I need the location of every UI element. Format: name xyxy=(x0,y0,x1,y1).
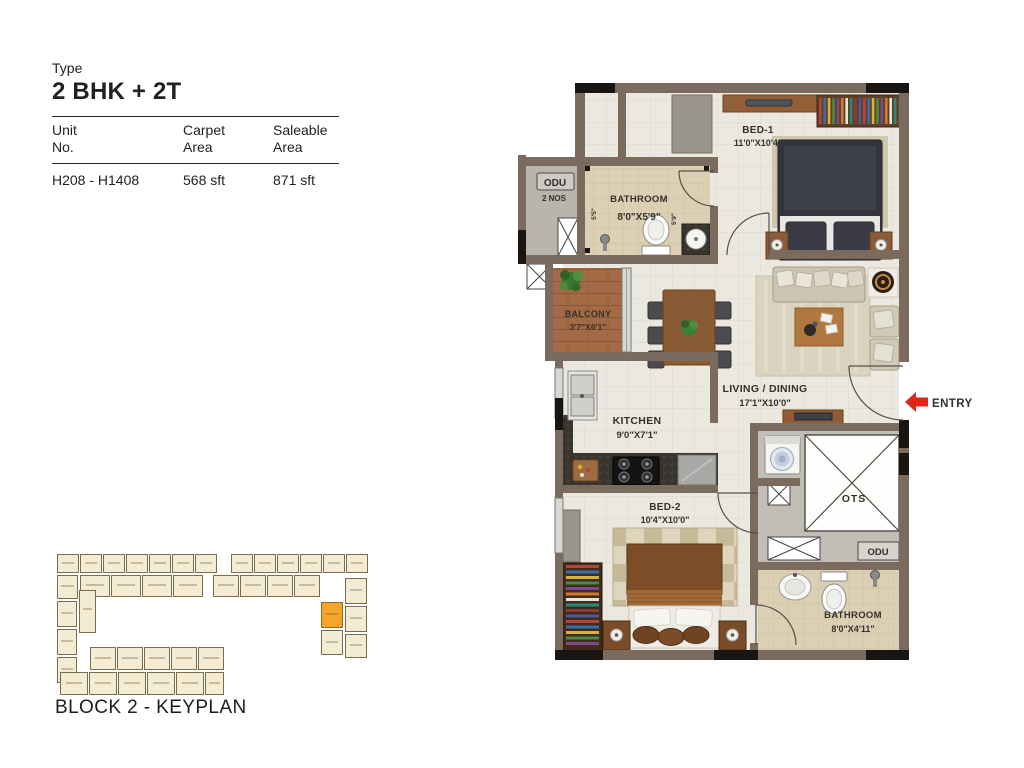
keyplan-block xyxy=(147,672,175,695)
keyplan-block xyxy=(149,554,171,573)
keyplan-block xyxy=(198,647,224,670)
balcony-plant xyxy=(560,270,583,292)
keyplan-block xyxy=(79,590,96,633)
keyplan xyxy=(55,552,370,697)
column-saleable-area: SaleableArea xyxy=(273,122,328,156)
keyplan-block xyxy=(345,606,367,632)
toilet-icon xyxy=(642,246,670,255)
keyplan-block xyxy=(144,647,170,670)
keyplan-block xyxy=(89,672,117,695)
keyplan-block xyxy=(171,647,197,670)
bathroom1-dim: 8'0"X5'9" xyxy=(617,212,660,223)
toilet-icon xyxy=(821,572,847,581)
keyplan-block xyxy=(57,601,77,627)
keyplan-block xyxy=(240,575,266,597)
bed2-label: BED-2 xyxy=(649,502,681,513)
bed2 xyxy=(627,544,722,594)
keyplan-block xyxy=(172,554,194,573)
entry-arrow-icon xyxy=(905,392,928,412)
floor-plan: BED-1 11'0"X10'4" BATHROOM 8'0"X5'9" 5'5… xyxy=(518,78,1024,670)
carpet-area-value: 568 sft xyxy=(183,172,225,188)
living-dim: 17'1"X10'0" xyxy=(739,398,791,409)
column-unit-no: UnitNo. xyxy=(52,122,77,156)
keyplan-block xyxy=(57,629,77,655)
keyplan-block xyxy=(126,554,148,573)
entry-label: ENTRY xyxy=(932,398,973,410)
shower-icon xyxy=(601,235,610,244)
keyplan-block xyxy=(321,630,343,655)
keyplan-block xyxy=(254,554,276,573)
keyplan-highlight-unit xyxy=(321,602,343,628)
keyplan-block xyxy=(173,575,203,597)
keyplan-block xyxy=(346,554,368,573)
bathroom2-label: BATHROOM xyxy=(824,610,882,621)
keyplan-block xyxy=(117,647,143,670)
bathroom2-dim: 8'0"X4'11" xyxy=(831,624,874,634)
keyplan-block xyxy=(213,575,239,597)
keyplan-block xyxy=(294,575,320,597)
bathroom1-side-dim: 5'9" xyxy=(671,213,678,225)
unit-info-panel: Type 2 BHK + 2T UnitNo. CarpetArea Salea… xyxy=(52,60,339,195)
keyplan-block xyxy=(80,554,102,573)
ots-label: OTS xyxy=(842,493,867,505)
keyplan-block xyxy=(267,575,293,597)
keyplan-block xyxy=(57,554,79,573)
keyplan-block xyxy=(345,578,367,604)
keyplan-block xyxy=(60,672,88,695)
balcony-dim: 3'7"X6'1" xyxy=(570,322,607,332)
living-label: LIVING / DINING xyxy=(722,383,807,395)
keyplan-block xyxy=(103,554,125,573)
bed1-dim: 11'0"X10'4" xyxy=(734,138,782,148)
bed1-label: BED-1 xyxy=(742,125,774,136)
unit-no-value: H208 - H1408 xyxy=(52,172,139,188)
bathroom1-label: BATHROOM xyxy=(610,194,668,205)
column-carpet-area: CarpetArea xyxy=(183,122,225,156)
divider-bottom xyxy=(52,163,339,164)
balcony-label: BALCONY xyxy=(565,309,612,319)
keyplan-block xyxy=(205,672,224,695)
type-label: Type xyxy=(52,60,82,76)
odu-top-label: ODU xyxy=(544,178,566,189)
bed2-dim: 10'4"X10'0" xyxy=(641,515,690,525)
keyplan-block xyxy=(111,575,141,597)
keyplan-block xyxy=(323,554,345,573)
wardrobe-bed2 xyxy=(563,563,602,653)
keyplan-block xyxy=(300,554,322,573)
shower-icon xyxy=(871,571,880,580)
saleable-area-value: 871 sft xyxy=(273,172,315,188)
wardrobe-bed1 xyxy=(817,95,907,127)
divider-top xyxy=(52,116,339,117)
bathroom1-side-dim: 5'5" xyxy=(591,208,598,220)
unit-type-title: 2 BHK + 2T xyxy=(52,78,181,106)
kitchen-label: KITCHEN xyxy=(613,415,662,427)
keyplan-block xyxy=(345,634,367,658)
odu-bottom-label: ODU xyxy=(867,547,888,558)
keyplan-block xyxy=(57,575,78,599)
keyplan-block xyxy=(195,554,217,573)
keyplan-title: BLOCK 2 - KEYPLAN xyxy=(55,697,247,719)
keyplan-block xyxy=(90,647,116,670)
keyplan-block xyxy=(118,672,146,695)
kitchen-dim: 9'0"X7'1" xyxy=(617,430,658,441)
keyplan-block xyxy=(277,554,299,573)
keyplan-block xyxy=(176,672,204,695)
entry-marker: ENTRY xyxy=(905,392,973,412)
odu-top-qty: 2 NOS xyxy=(542,194,567,203)
keyplan-block xyxy=(142,575,172,597)
keyplan-block xyxy=(231,554,253,573)
